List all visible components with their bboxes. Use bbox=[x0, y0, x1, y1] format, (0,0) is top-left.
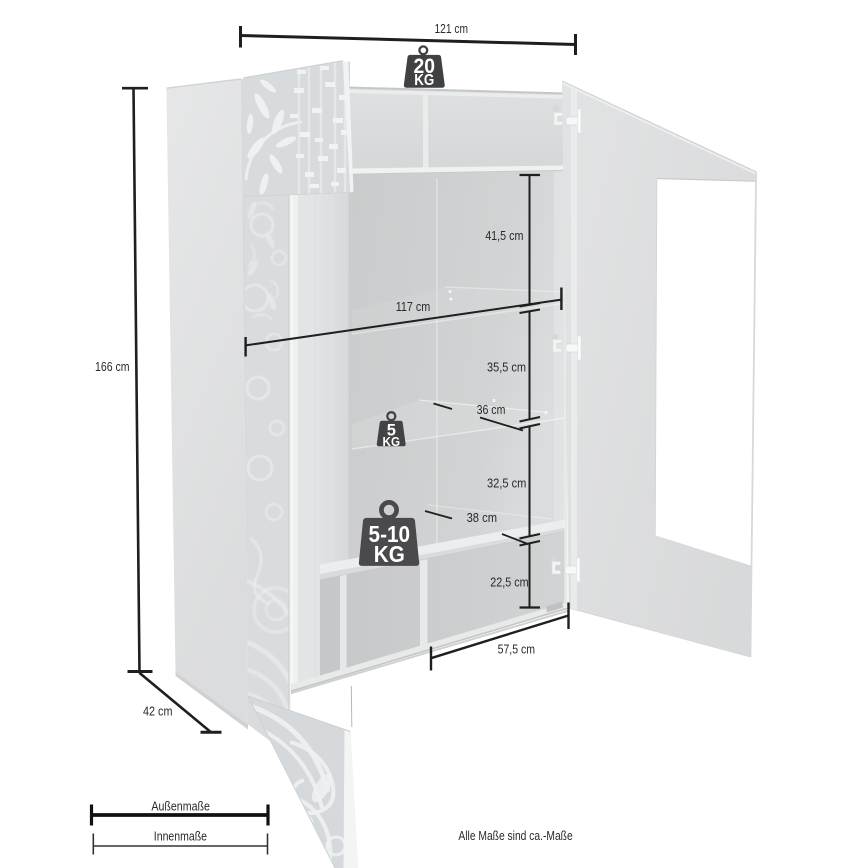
svg-text:32,5 cm: 32,5 cm bbox=[487, 477, 526, 491]
svg-text:166 cm: 166 cm bbox=[95, 360, 130, 374]
svg-text:35,5 cm: 35,5 cm bbox=[487, 361, 526, 375]
svg-text:22,5 cm: 22,5 cm bbox=[490, 576, 528, 590]
svg-text:Alle Maße sind ca.-Maße: Alle Maße sind ca.-Maße bbox=[458, 828, 572, 843]
svg-text:36 cm: 36 cm bbox=[477, 403, 506, 417]
svg-text:KG: KG bbox=[414, 72, 434, 89]
svg-text:42 cm: 42 cm bbox=[143, 705, 173, 719]
svg-text:38 cm: 38 cm bbox=[467, 511, 497, 525]
svg-text:121 cm: 121 cm bbox=[435, 22, 469, 36]
svg-text:41,5 cm: 41,5 cm bbox=[485, 229, 523, 243]
svg-text:Außenmaße: Außenmaße bbox=[151, 800, 210, 814]
svg-text:57,5 cm: 57,5 cm bbox=[498, 643, 535, 657]
svg-text:KG: KG bbox=[374, 541, 405, 567]
svg-text:117 cm: 117 cm bbox=[396, 300, 431, 314]
svg-text:Innenmaße: Innenmaße bbox=[154, 830, 207, 844]
svg-text:KG: KG bbox=[383, 435, 401, 449]
